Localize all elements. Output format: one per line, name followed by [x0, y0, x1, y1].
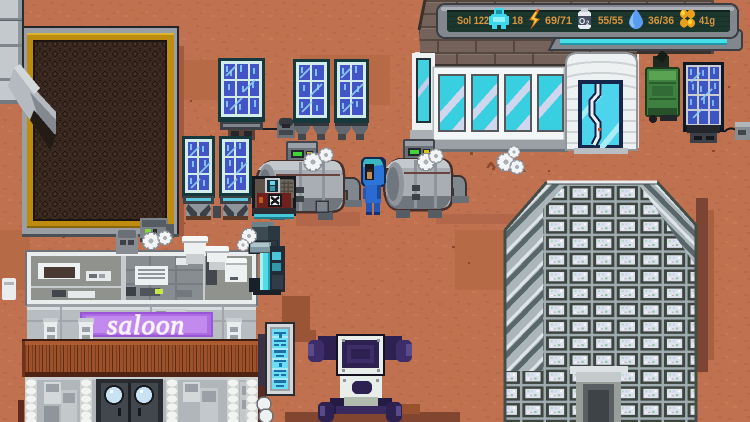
svg-text:41g: 41g — [699, 15, 715, 27]
svg-text:saloon: saloon — [107, 310, 185, 340]
svg-text:69/71: 69/71 — [545, 15, 572, 27]
svg-text:Sol 122: Sol 122 — [457, 15, 489, 27]
svg-text:36/36: 36/36 — [648, 15, 674, 27]
svg-text:O: O — [579, 17, 585, 26]
svg-text:55/55: 55/55 — [598, 15, 623, 27]
svg-text:18: 18 — [512, 15, 523, 27]
